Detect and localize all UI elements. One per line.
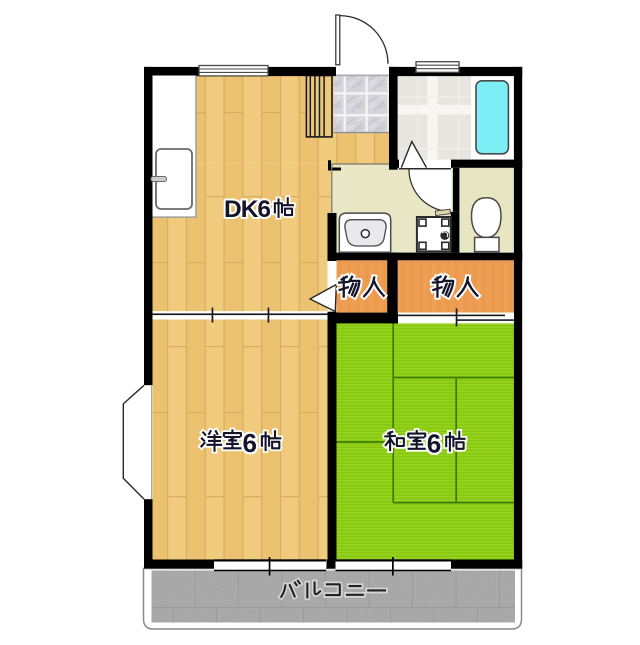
svg-text:6: 6 [243, 428, 257, 458]
svg-text:6: 6 [427, 429, 441, 459]
svg-text:DK6: DK6 [224, 196, 270, 223]
